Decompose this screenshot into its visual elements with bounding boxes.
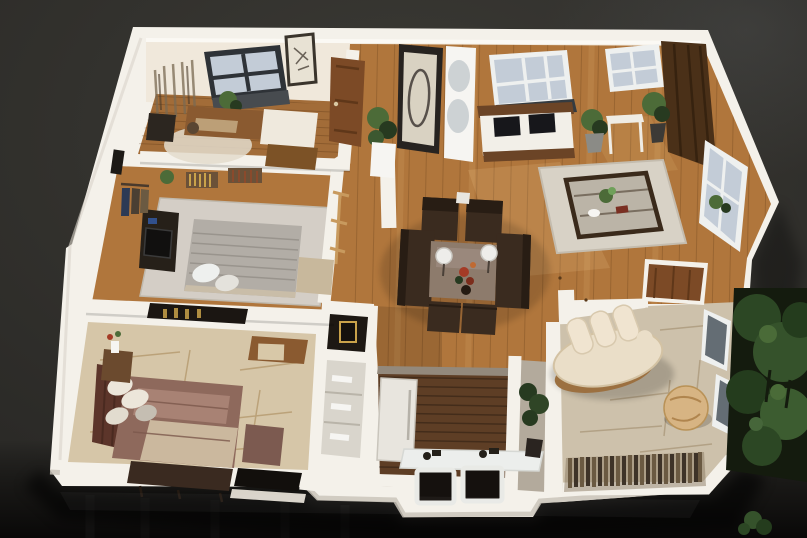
centerpiece-dark: [461, 285, 471, 295]
black-pillow-1: [493, 116, 520, 137]
apartment: [50, 27, 779, 517]
centerpiece-darkred: [466, 277, 474, 285]
hanging-clothes-3: [140, 189, 149, 213]
between-chairs-table: [456, 192, 470, 204]
flower-side-table: [101, 349, 133, 383]
hanging-clothes-2: [131, 188, 140, 214]
floorplan-render: 3D apartment floor plan render: [0, 0, 807, 538]
flower-red: [107, 334, 113, 340]
grass-tuft-3: [738, 523, 750, 535]
pantry-plant-3: [522, 410, 538, 426]
sill-plant-2: [721, 203, 731, 213]
black-pillow-2: [528, 113, 555, 134]
shelf-niche-2: [447, 99, 469, 133]
master-plant: [160, 170, 174, 184]
sill-plant: [709, 195, 723, 209]
door-handle: [334, 102, 338, 106]
gold-framed-art: [340, 322, 356, 342]
centerpiece-green: [455, 276, 463, 284]
bedroom2-bottom-wall-right: [300, 482, 320, 484]
lounge-top-band: [560, 303, 648, 305]
wall-kitchen-pantry: [511, 356, 515, 497]
desk-bowl: [187, 122, 199, 134]
study-framed-art: [286, 34, 316, 85]
bar-stool-2: [463, 468, 502, 501]
coffee-table: [566, 173, 661, 237]
fixture-3: [479, 450, 487, 458]
daybed-drawers: [265, 144, 318, 170]
living-plant-pot: [585, 133, 604, 153]
armchair-2-back: [466, 199, 503, 214]
centerpiece-red: [459, 267, 469, 277]
floor-leaf-2: [558, 276, 561, 279]
flower-vase: [111, 341, 119, 353]
master-foot-bench: [296, 257, 334, 295]
grass-tuft-2: [756, 519, 772, 535]
table-bowl: [588, 209, 600, 217]
shelf-niche-1: [448, 60, 470, 92]
flower-green: [115, 331, 121, 337]
fixture-1: [423, 452, 431, 460]
render-stage: 3D apartment floor plan render: [0, 0, 807, 538]
living-plant-2b: [654, 106, 670, 122]
centerpiece-orange: [470, 262, 476, 268]
floor-leaf-3: [584, 298, 587, 301]
pantry-plant-pot: [525, 438, 543, 458]
dresser-tv: [144, 228, 172, 258]
leaf-highlight-2: [770, 384, 786, 400]
desk-chair: [146, 113, 176, 142]
entry-mirror-face: [402, 52, 437, 146]
fixture-4: [489, 448, 499, 454]
entry-planter-box: [370, 142, 396, 178]
corner-desk-cushion: [258, 344, 285, 361]
leaf-highlight-1: [759, 325, 777, 343]
leaf-highlight-3: [749, 417, 763, 431]
fixture-2: [432, 450, 441, 456]
bedroom2-beige-blanket: [140, 420, 238, 468]
armchair-1-back: [422, 197, 459, 212]
sphere-lamp-2: [481, 245, 497, 261]
pantry-floor: [517, 360, 549, 492]
study-daybed: [260, 109, 318, 148]
table-plant-b: [608, 187, 616, 195]
bedroom2-ottoman: [242, 424, 284, 466]
shrub-5: [742, 426, 782, 466]
dresser-blue-box: [148, 218, 157, 224]
sphere-lamp-1: [436, 248, 452, 264]
hanging-clothes-1: [121, 188, 130, 216]
round-pouf: [664, 386, 708, 430]
